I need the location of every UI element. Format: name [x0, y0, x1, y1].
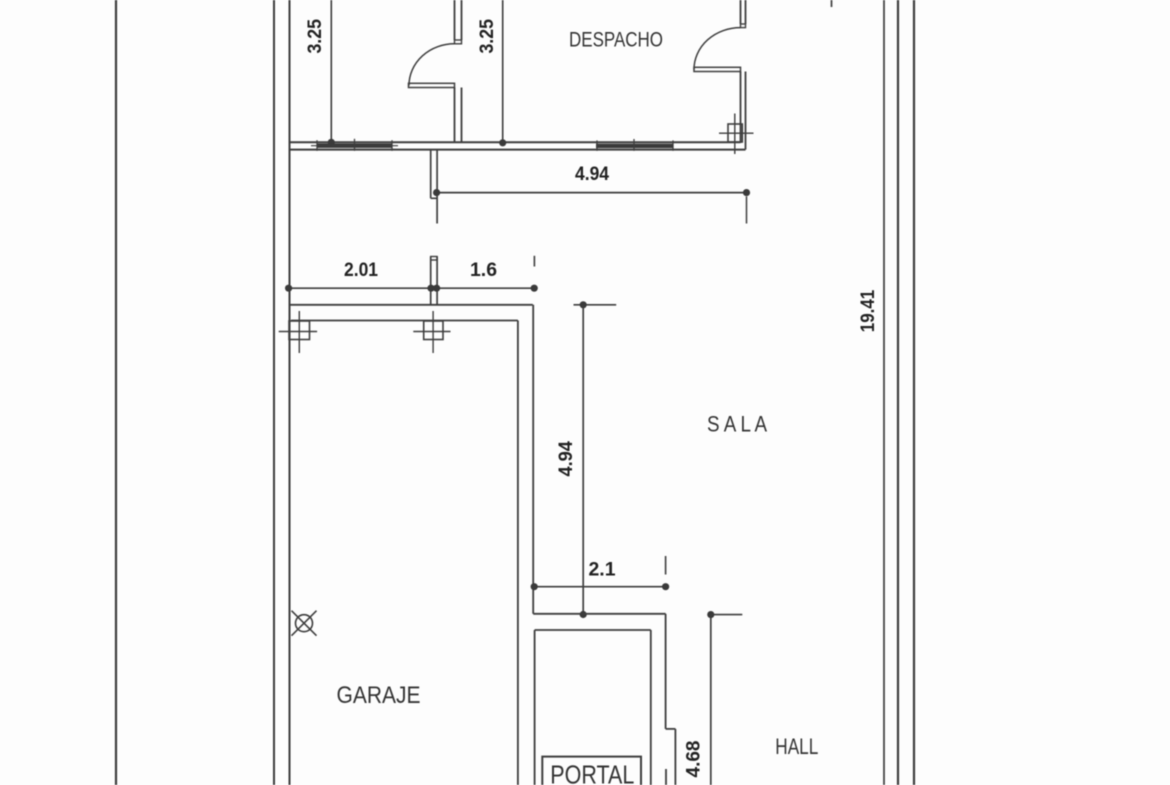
svg-text:2.1: 2.1: [589, 559, 616, 581]
svg-text:3.25: 3.25: [476, 19, 498, 54]
svg-text:HALL: HALL: [775, 734, 818, 759]
svg-text:4.94: 4.94: [555, 441, 577, 477]
svg-text:4.68: 4.68: [683, 740, 705, 777]
svg-text:2.01: 2.01: [344, 259, 378, 281]
svg-text:1.6: 1.6: [470, 259, 497, 281]
svg-text:19.41: 19.41: [857, 290, 879, 333]
svg-text:3.25: 3.25: [304, 19, 326, 54]
svg-text:PORTAL: PORTAL: [550, 762, 634, 785]
svg-text:4.94: 4.94: [575, 163, 609, 185]
svg-text:DESPACHO: DESPACHO: [569, 27, 663, 51]
svg-text:S A L A: S A L A: [707, 412, 767, 437]
svg-text:GARAJE: GARAJE: [337, 682, 421, 709]
